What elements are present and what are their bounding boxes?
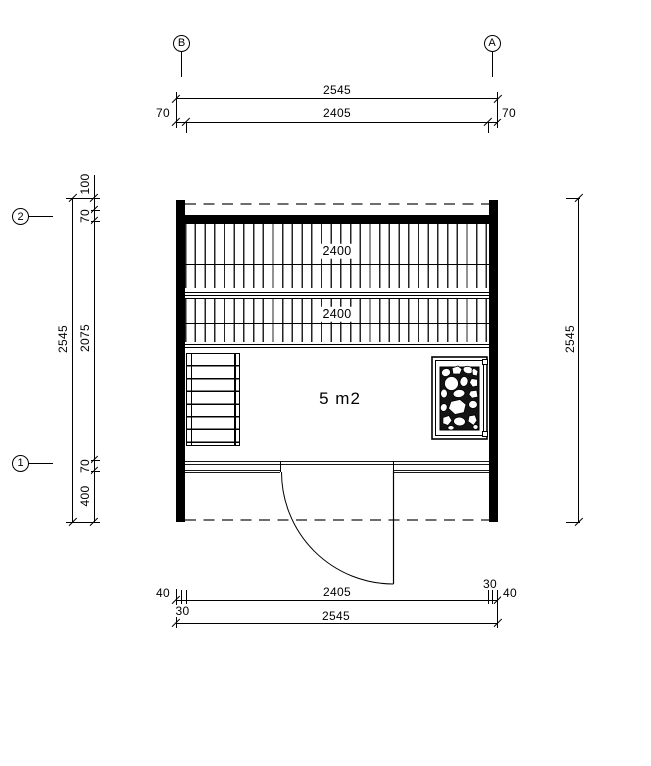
bench-upper-edge-line <box>185 264 489 265</box>
bench-divider-line <box>185 292 489 293</box>
sauna-heater <box>431 355 489 441</box>
dim-line-top-inner <box>176 122 498 123</box>
glass-wall-right <box>394 470 489 471</box>
grid-marker-a: A <box>484 35 501 52</box>
wall-right <box>489 200 498 522</box>
dim-bottom-left-40: 40 <box>154 587 172 599</box>
steps-rail <box>234 354 235 445</box>
glass-wall-right <box>394 461 489 462</box>
dim-bottom-left-30: 30 <box>174 605 192 617</box>
bench-front-line <box>185 344 489 345</box>
dim-line-right-overall <box>578 198 579 523</box>
glass-wall-left <box>185 461 280 462</box>
wall-left <box>176 200 185 522</box>
glass-wall-left <box>185 464 280 465</box>
glass-wall-left <box>185 472 280 473</box>
bench-lower-edge-line <box>185 323 489 324</box>
dim-top-left-offset: 70 <box>154 107 172 119</box>
dim-left-70-top: 70 <box>79 207 91 225</box>
dim-bottom-right-40: 40 <box>501 587 519 599</box>
dim-line-top-overall <box>176 98 498 99</box>
grid-marker-2: 2 <box>12 208 29 225</box>
heater-wall-bracket-bottom <box>482 431 489 438</box>
steps-rail <box>191 354 192 445</box>
dim-bottom-overall: 2545 <box>320 610 352 622</box>
bench-upper-length-label: 2400 <box>318 244 355 259</box>
floor-plan-canvas: B A 2 1 2545 2405 70 70 100 70 2545 2075… <box>0 0 651 766</box>
dim-top-right-offset: 70 <box>500 107 518 119</box>
sauna-steps <box>186 353 240 446</box>
bench-lower-length-label: 2400 <box>318 307 355 322</box>
grid-line-1 <box>29 463 53 464</box>
grid-line-2 <box>29 216 53 217</box>
grid-marker-a-label: A <box>488 37 495 49</box>
dim-line-bottom-inner <box>176 600 498 601</box>
dim-bottom-right-30: 30 <box>481 578 499 590</box>
bench-front-line <box>185 347 489 348</box>
room-area-label: 5 m2 <box>319 389 361 409</box>
dim-left-overall: 2545 <box>57 323 69 355</box>
dim-top-overall: 2545 <box>321 84 353 96</box>
dim-line-left-overall <box>72 198 73 522</box>
bench-divider-line <box>185 295 489 296</box>
dim-left-100: 100 <box>79 172 91 197</box>
door <box>274 458 400 590</box>
dim-top-inner: 2405 <box>321 107 353 119</box>
glass-wall-right <box>394 464 489 465</box>
glass-wall-right <box>394 472 489 473</box>
dim-tick <box>488 590 489 604</box>
dim-tick <box>181 590 182 604</box>
wall-top <box>185 215 489 223</box>
dim-left-70-bottom: 70 <box>79 457 91 475</box>
dim-left-400: 400 <box>79 484 91 509</box>
dim-tick <box>186 590 187 604</box>
dim-left-inner: 2075 <box>79 322 91 354</box>
deck-edge-dashed-top <box>185 203 489 205</box>
dim-tick <box>492 590 493 604</box>
grid-marker-2-label: 2 <box>17 211 23 223</box>
dim-right-overall: 2545 <box>564 323 576 355</box>
grid-marker-1: 1 <box>12 455 29 472</box>
grid-marker-b-label: B <box>178 37 185 49</box>
grid-marker-1-label: 1 <box>17 457 23 469</box>
heater-wall-bracket-top <box>482 359 489 366</box>
grid-marker-b: B <box>173 35 190 52</box>
grid-line-a <box>492 52 493 77</box>
door-swing-arc <box>282 472 394 584</box>
grid-line-b <box>181 52 182 77</box>
glass-wall-left <box>185 470 280 471</box>
